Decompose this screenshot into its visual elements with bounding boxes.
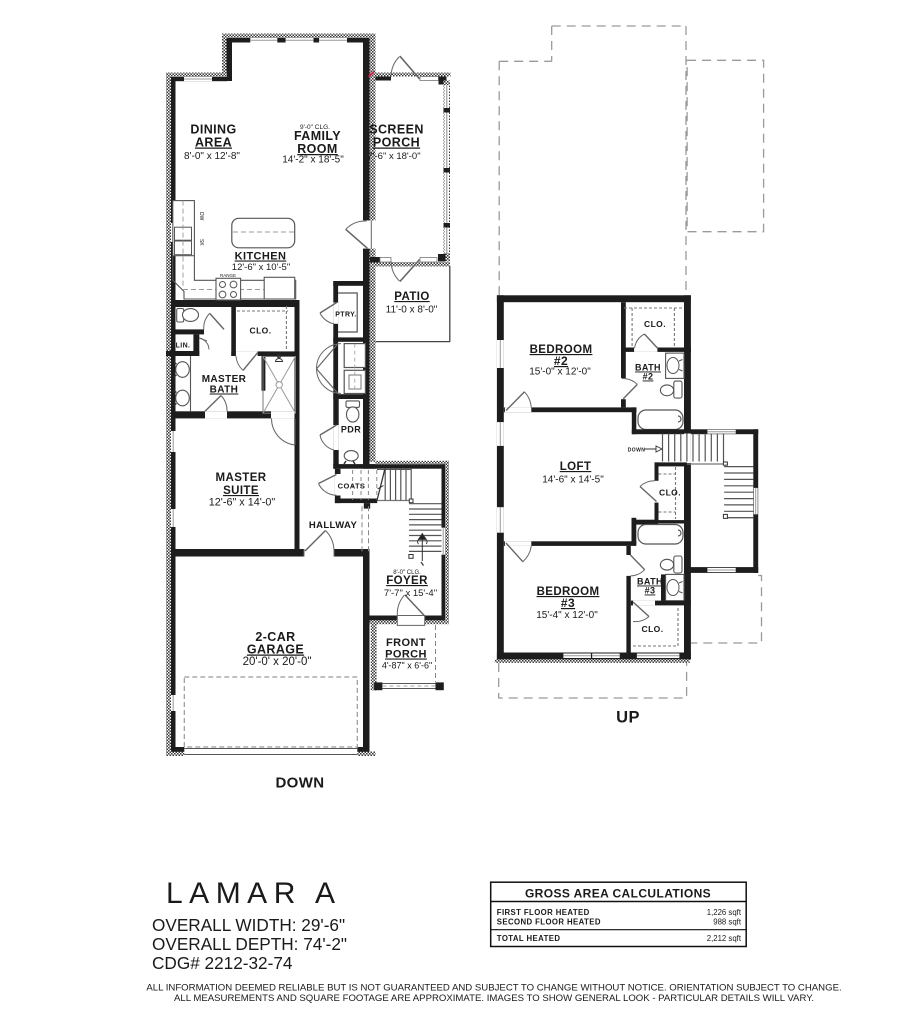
svg-text:DOWN: DOWN [275,775,324,792]
svg-text:8'-0" x 12'-8": 8'-0" x 12'-8" [184,151,240,162]
svg-text:CDG# 2212-32-74: CDG# 2212-32-74 [152,953,293,973]
svg-text:FIRST FLOOR HEATED: FIRST FLOOR HEATED [497,908,590,917]
svg-text:14'-6" x 14'-5": 14'-6" x 14'-5" [542,475,604,486]
svg-text:MASTER: MASTER [202,374,247,385]
svg-text:PDR: PDR [341,425,361,435]
svg-text:BATH: BATH [210,385,239,396]
svg-text:AREA: AREA [195,136,232,150]
svg-text:#3: #3 [645,586,656,596]
svg-text:CLO.: CLO. [644,319,666,329]
svg-text:15'-0" x 12'-0": 15'-0" x 12'-0" [529,367,591,378]
svg-text:SK: SK [198,239,204,246]
svg-text:ALL INFORMATION DEEMED RELIABL: ALL INFORMATION DEEMED RELIABLE BUT IS N… [146,983,841,994]
svg-text:FOYER: FOYER [386,575,428,587]
svg-text:#3: #3 [561,596,575,610]
svg-text:7'-7" x 15'-4": 7'-7" x 15'-4" [384,588,437,599]
svg-text:OVERALL WIDTH: 29'-6": OVERALL WIDTH: 29'-6" [152,915,345,935]
svg-text:SUITE: SUITE [223,485,259,497]
svg-text:COATS: COATS [338,482,366,491]
svg-text:CLO.: CLO. [642,624,664,634]
svg-text:LIN.: LIN. [176,343,191,350]
svg-text:12'-6" x 10'-5": 12'-6" x 10'-5" [232,262,290,273]
svg-text:LAMAR A: LAMAR A [166,877,342,910]
svg-text:OVERALL DEPTH: 74'-2": OVERALL DEPTH: 74'-2" [152,934,347,954]
svg-text:20'-0' x 20'-0": 20'-0' x 20'-0" [243,656,312,668]
svg-text:FAMILY: FAMILY [294,129,341,143]
svg-text:PATIO: PATIO [394,291,429,303]
svg-text:2,212 sqft: 2,212 sqft [707,934,742,943]
svg-text:LOFT: LOFT [560,461,592,473]
svg-text:11'-0 x 8'-0": 11'-0 x 8'-0" [386,305,438,316]
svg-text:FRONT: FRONT [386,637,426,649]
svg-text:DINING: DINING [190,123,236,137]
svg-text:UP: UP [616,709,640,727]
svg-text:7'-6" x 18'-0": 7'-6" x 18'-0" [367,151,420,162]
svg-text:DOWN: DOWN [628,448,645,454]
svg-text:PORCH: PORCH [373,136,420,150]
svg-text:14'-2" x 18'-5": 14'-2" x 18'-5" [282,155,344,166]
svg-text:CLO.: CLO. [659,488,681,498]
svg-text:12'-6" x 14'-0": 12'-6" x 14'-0" [209,497,276,509]
svg-text:ALL MEASUREMENTS AND SQUARE FO: ALL MEASUREMENTS AND SQUARE FOOTAGE ARE … [174,993,814,1004]
svg-text:4'-87" x 6'-6": 4'-87" x 6'-6" [382,661,432,671]
svg-text:#2: #2 [643,372,654,382]
svg-text:SECOND FLOOR HEATED: SECOND FLOOR HEATED [497,918,601,927]
svg-text:KITCHEN: KITCHEN [235,251,287,263]
svg-text:15'-4" x 12'-0": 15'-4" x 12'-0" [536,610,598,621]
svg-text:DW: DW [198,212,204,221]
svg-text:CLO.: CLO. [250,326,272,336]
svg-text:GARAGE: GARAGE [247,643,304,657]
svg-text:GROSS AREA CALCULATIONS: GROSS AREA CALCULATIONS [525,887,711,901]
svg-text:HALLWAY: HALLWAY [309,520,358,531]
svg-text:1,226 sqft: 1,226 sqft [707,908,742,917]
svg-text:MASTER: MASTER [216,472,267,484]
svg-text:988 sqft: 988 sqft [713,918,742,927]
svg-text:PORCH: PORCH [385,649,427,661]
svg-text:SCREEN: SCREEN [369,123,424,137]
svg-text:TOTAL HEATED: TOTAL HEATED [497,934,561,943]
svg-text:RANGE: RANGE [220,273,236,278]
svg-text:PTRY.: PTRY. [335,312,357,319]
